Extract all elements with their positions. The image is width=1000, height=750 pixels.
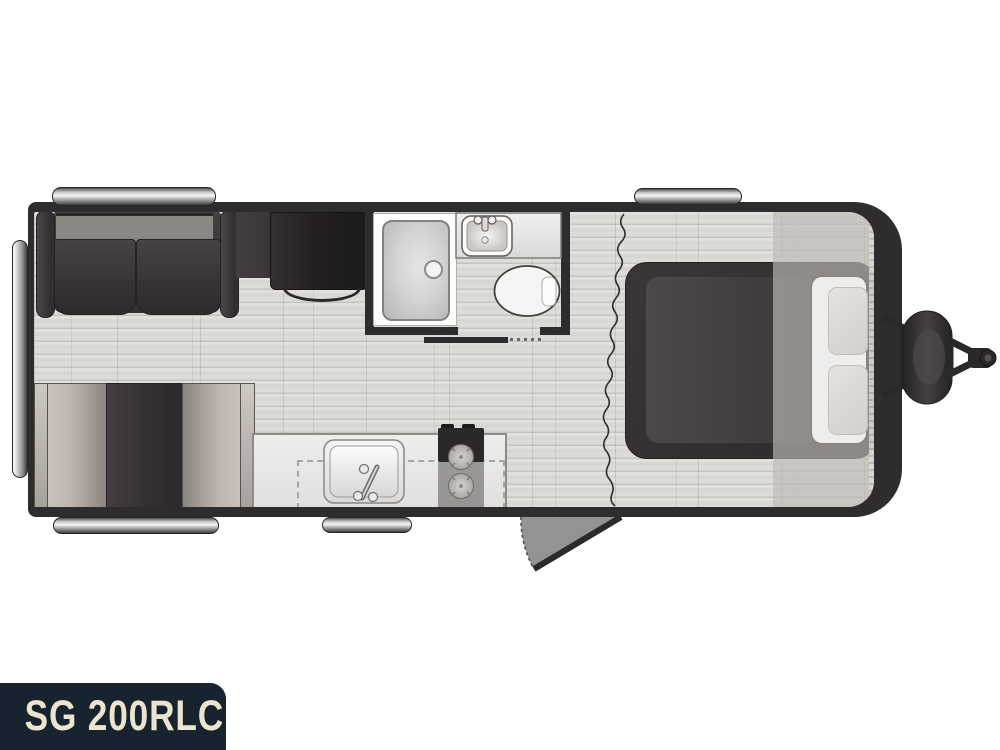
dinette-table (106, 383, 184, 507)
awning-rail-top-right (634, 188, 742, 205)
sofa-armrest-left (36, 212, 55, 318)
pocket-door (424, 337, 508, 343)
dinette-bench-left (47, 383, 108, 507)
model-plate: SG 200RLC (0, 683, 226, 750)
sofa-cushion-left (53, 239, 136, 315)
trailer-interior-floor (34, 212, 874, 507)
shower-drain (424, 260, 443, 279)
awning-rail-top-left (52, 187, 216, 206)
bathroom-vanity-sink (455, 212, 567, 264)
floorplan-canvas: SG 200RLC (0, 0, 1000, 750)
rear-bumper (12, 240, 28, 478)
entry-door-swing (505, 507, 645, 579)
tv-stand-arc (283, 288, 361, 302)
dinette-bench-right (182, 383, 242, 507)
cooktop-burners (438, 428, 484, 507)
bathroom-wall-bottom-right (540, 327, 570, 335)
toilet (492, 264, 564, 319)
kitchen-sink (320, 436, 410, 507)
model-label: SG 200RLC (0, 692, 224, 741)
bathroom-wall-bottom-left (365, 327, 458, 335)
sofa-cushion-right (136, 239, 221, 315)
pocket-door-track (510, 338, 542, 341)
storage-rail-bottom-left (53, 517, 219, 534)
tv (270, 212, 368, 290)
hitch-assembly (858, 295, 1000, 425)
curtain-divider (596, 212, 640, 507)
faucet-base (354, 492, 363, 501)
entry-grab-rail (322, 517, 412, 533)
